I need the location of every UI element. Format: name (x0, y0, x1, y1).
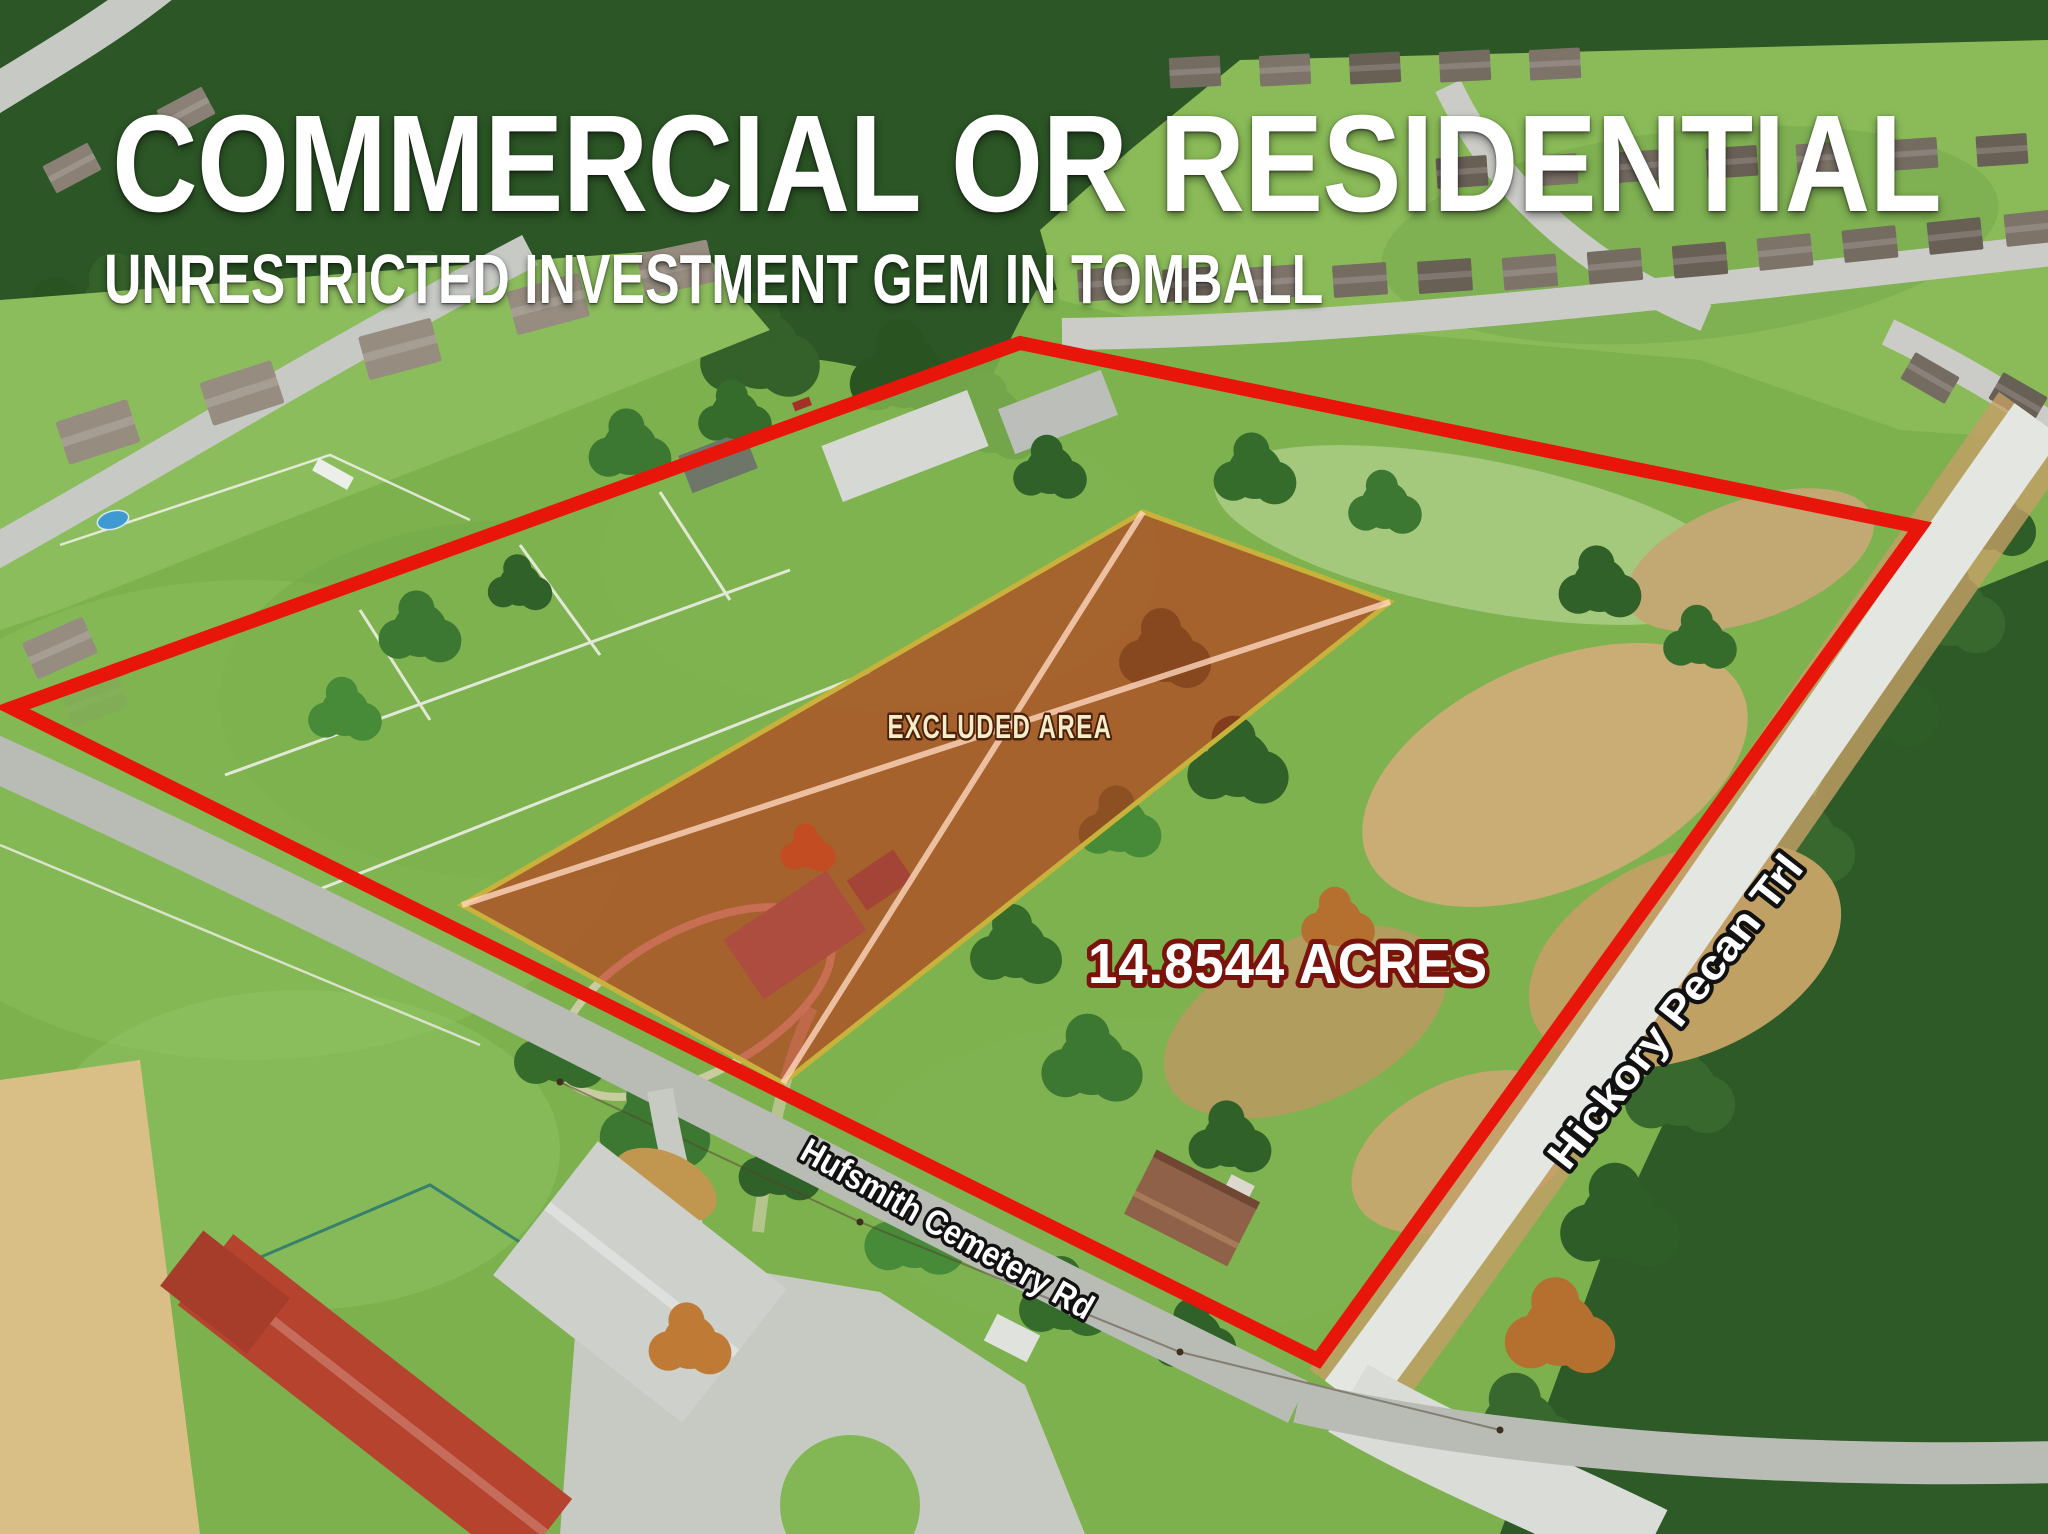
subheadline: UNRESTRICTED INVESTMENT GEM IN TOMBALL (104, 243, 1323, 317)
headline: COMMERCIAL OR RESIDENTIAL (112, 92, 1941, 237)
aerial-photo: EXCLUDED AREA 14.8544 ACRES Hufsmith Cem… (0, 0, 2048, 1534)
acreage-label: 14.8544 ACRES (1088, 932, 1488, 996)
excluded-area-label: EXCLUDED AREA (888, 708, 1113, 745)
